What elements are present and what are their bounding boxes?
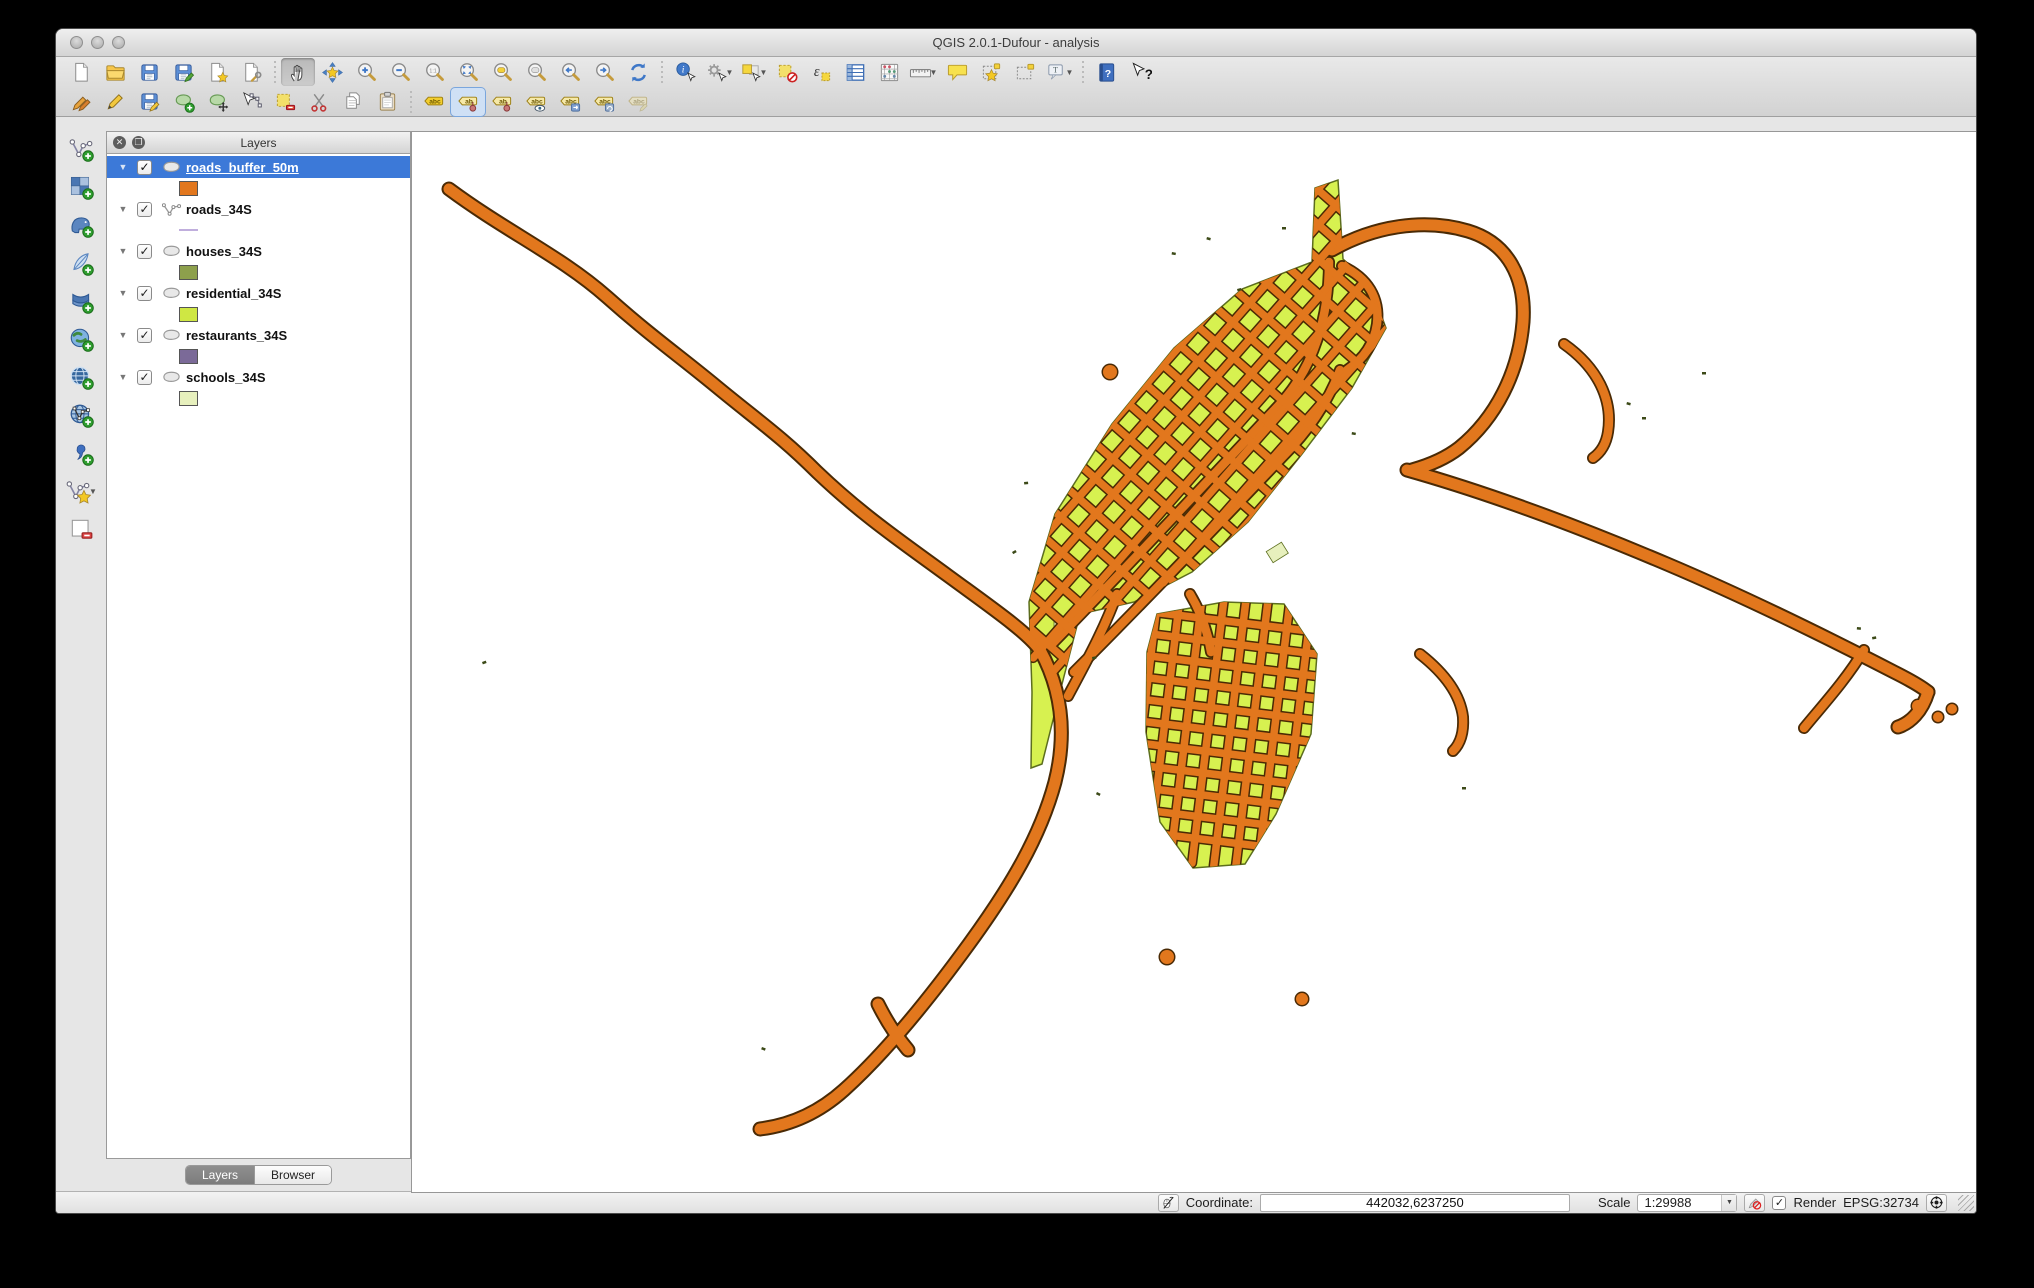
zoom-native-button[interactable]: 1:1 bbox=[417, 58, 451, 86]
chevron-down-icon: ▼ bbox=[89, 487, 97, 496]
expander-icon[interactable]: ▼ bbox=[117, 288, 129, 298]
crs-text: EPSG:32734 bbox=[1843, 1195, 1919, 1210]
toolbar-file-nav-attributes: 1:1i▼▼ε▼T▼?? bbox=[56, 57, 1976, 87]
add-postgis-layer-button[interactable] bbox=[63, 209, 99, 241]
new-project-icon bbox=[70, 61, 93, 84]
feature-action-button[interactable]: ▼ bbox=[702, 58, 736, 86]
field-calculator-button[interactable] bbox=[872, 58, 906, 86]
whats-this-button[interactable]: ? bbox=[1123, 58, 1157, 86]
show-bookmarks-button[interactable] bbox=[1008, 58, 1042, 86]
add-mssql-layer-icon bbox=[68, 288, 94, 314]
measure-icon bbox=[909, 61, 932, 84]
layer-symbol-swatch bbox=[179, 181, 198, 196]
add-wms-layer-icon bbox=[68, 326, 94, 352]
new-composer-icon bbox=[206, 61, 229, 84]
panel-tabs: LayersBrowser bbox=[185, 1165, 332, 1185]
select-expression-icon: ε bbox=[810, 61, 833, 84]
show-hide-labels-button[interactable]: abc bbox=[519, 88, 553, 116]
label-options-icon: abc bbox=[423, 90, 446, 113]
polygon-layer-icon bbox=[160, 160, 182, 174]
zoom-selection-button[interactable] bbox=[485, 58, 519, 86]
add-delimited-text-layer-icon bbox=[68, 440, 94, 466]
layer-symbol-swatch bbox=[179, 391, 198, 406]
layer-name: houses_34S bbox=[186, 244, 262, 259]
add-vector-layer-icon bbox=[68, 136, 94, 162]
polygon-layer-icon bbox=[160, 244, 182, 258]
cut-features-icon bbox=[308, 90, 331, 113]
layer-checkbox[interactable]: ✓ bbox=[137, 160, 152, 175]
tab-layers[interactable]: Layers bbox=[186, 1166, 255, 1184]
deselect-features-button[interactable] bbox=[770, 58, 804, 86]
open-project-button[interactable] bbox=[98, 58, 132, 86]
open-project-icon bbox=[104, 61, 127, 84]
layer-checkbox[interactable]: ✓ bbox=[137, 328, 152, 343]
node-tool-button[interactable] bbox=[234, 88, 268, 116]
attribute-table-button[interactable] bbox=[838, 58, 872, 86]
zoom-selection-icon bbox=[491, 61, 514, 84]
layers-panel-header: ✕ ❐ Layers bbox=[107, 132, 410, 154]
highlight-pinned-icon: ab bbox=[491, 90, 514, 113]
add-raster-layer-icon bbox=[68, 174, 94, 200]
text-annotation-icon: T bbox=[1045, 61, 1068, 84]
composer-manager-icon bbox=[240, 61, 263, 84]
save-edits-icon bbox=[138, 90, 161, 113]
map-drawing bbox=[412, 132, 1977, 1192]
layer-name: roads_buffer_50m bbox=[186, 160, 299, 175]
chevron-down-icon: ▼ bbox=[1066, 68, 1074, 77]
pan-to-selection-button[interactable] bbox=[315, 58, 349, 86]
svg-text:?: ? bbox=[1104, 67, 1110, 79]
deselect-features-icon bbox=[776, 61, 799, 84]
add-vector-layer-button[interactable] bbox=[63, 133, 99, 165]
layer-symbol-swatch bbox=[179, 229, 198, 231]
svg-text:abc: abc bbox=[633, 98, 645, 105]
select-features-button[interactable]: ▼ bbox=[736, 58, 770, 86]
zoom-last-icon bbox=[559, 61, 582, 84]
add-spatialite-layer-button[interactable] bbox=[63, 247, 99, 279]
svg-text:?: ? bbox=[1144, 67, 1151, 82]
select-features-icon bbox=[739, 61, 762, 84]
polygon-layer-icon bbox=[160, 286, 182, 300]
text-annotation-button[interactable]: T▼ bbox=[1042, 58, 1076, 86]
layer-name: schools_34S bbox=[186, 370, 266, 385]
pan-to-selection-icon bbox=[321, 61, 344, 84]
add-feature-icon bbox=[172, 90, 195, 113]
new-composer-button[interactable] bbox=[200, 58, 234, 86]
add-mssql-layer-button[interactable] bbox=[63, 285, 99, 317]
zoom-next-icon bbox=[593, 61, 616, 84]
pin-labels-button[interactable]: ab bbox=[451, 88, 485, 116]
new-bookmark-button[interactable] bbox=[974, 58, 1008, 86]
toolbar-digitizing-labels: abcabababcabcabcabc bbox=[56, 87, 1976, 117]
layer-name: residential_34S bbox=[186, 286, 281, 301]
toolbar-separator bbox=[1079, 61, 1086, 83]
zoom-in-button[interactable] bbox=[349, 58, 383, 86]
svg-text:ab: ab bbox=[465, 98, 473, 105]
toggle-editing-button[interactable] bbox=[98, 88, 132, 116]
delete-selected-icon bbox=[274, 90, 297, 113]
whats-this-icon: ? bbox=[1129, 61, 1152, 84]
toolbar-separator bbox=[407, 91, 414, 113]
attribute-table-icon bbox=[844, 61, 867, 84]
field-calculator-icon bbox=[878, 61, 901, 84]
statusbar: Coordinate: Scale 1:29988 ▼ ✓ Render EPS… bbox=[56, 1191, 1976, 1213]
pin-labels-icon: ab bbox=[457, 90, 480, 113]
zoom-out-icon bbox=[389, 61, 412, 84]
layer-item-schools_34S[interactable]: ▼✓schools_34S bbox=[107, 366, 410, 388]
polygon-layer-icon bbox=[160, 370, 182, 384]
toolbar-separator bbox=[271, 61, 278, 83]
svg-text:i: i bbox=[681, 64, 684, 75]
titlebar[interactable]: QGIS 2.0.1-Dufour - analysis bbox=[56, 29, 1976, 57]
save-project-button[interactable] bbox=[132, 58, 166, 86]
zoom-native-icon: 1:1 bbox=[423, 61, 446, 84]
current-edits-button[interactable] bbox=[64, 88, 98, 116]
scale-value: 1:29988 bbox=[1638, 1195, 1721, 1210]
identify-icon: i bbox=[674, 61, 697, 84]
move-feature-button[interactable] bbox=[200, 88, 234, 116]
chevron-down-icon: ▼ bbox=[1721, 1195, 1736, 1211]
layer-checkbox[interactable]: ✓ bbox=[137, 370, 152, 385]
add-feature-button[interactable] bbox=[166, 88, 200, 116]
measure-button[interactable]: ▼ bbox=[906, 58, 940, 86]
save-project-as-icon bbox=[172, 61, 195, 84]
layer-item-roads_34S[interactable]: ▼✓roads_34S bbox=[107, 198, 410, 220]
toggle-editing-icon bbox=[104, 90, 127, 113]
layer-symbol-swatch bbox=[179, 307, 198, 322]
add-wms-layer-button[interactable] bbox=[63, 323, 99, 355]
zoom-layer-button[interactable] bbox=[519, 58, 553, 86]
layer-symbol-swatch bbox=[179, 265, 198, 280]
copy-features-icon bbox=[342, 90, 365, 113]
current-edits-icon bbox=[70, 90, 93, 113]
qgis-window: QGIS 2.0.1-Dufour - analysis 1:1i▼▼ε▼T▼?… bbox=[55, 28, 1977, 1214]
layer-list: ▼✓roads_buffer_50m▼✓roads_34S▼✓houses_34… bbox=[107, 154, 410, 1158]
svg-text:abc: abc bbox=[429, 98, 441, 105]
refresh-icon bbox=[627, 61, 650, 84]
layer-checkbox[interactable]: ✓ bbox=[137, 202, 152, 217]
layer-item-roads_buffer_50m[interactable]: ▼✓roads_buffer_50m bbox=[107, 156, 410, 178]
select-expression-button[interactable]: ε bbox=[804, 58, 838, 86]
polygon-layer-icon bbox=[160, 328, 182, 342]
change-label-icon: abc bbox=[627, 90, 650, 113]
add-wcs-layer-button[interactable] bbox=[63, 361, 99, 393]
add-wcs-layer-icon bbox=[68, 364, 94, 390]
coordinate-label: Coordinate: bbox=[1186, 1195, 1253, 1210]
svg-text:ab: ab bbox=[499, 98, 507, 105]
move-label-icon: abc bbox=[559, 90, 582, 113]
add-delimited-text-layer-button[interactable] bbox=[63, 437, 99, 469]
chevron-down-icon: ▼ bbox=[726, 68, 734, 77]
add-postgis-layer-icon bbox=[68, 212, 94, 238]
resize-grip[interactable] bbox=[1958, 1195, 1974, 1211]
new-project-button[interactable] bbox=[64, 58, 98, 86]
layer-symbol-swatch bbox=[179, 349, 198, 364]
scale-combo[interactable]: 1:29988 ▼ bbox=[1637, 1194, 1737, 1212]
label-options-button[interactable]: abc bbox=[417, 88, 451, 116]
save-project-as-button[interactable] bbox=[166, 58, 200, 86]
svg-text:abc: abc bbox=[531, 98, 543, 105]
refresh-button[interactable] bbox=[621, 58, 655, 86]
save-project-icon bbox=[138, 61, 161, 84]
line-layer-icon bbox=[160, 202, 182, 216]
expander-icon[interactable]: ▼ bbox=[117, 204, 129, 214]
rotate-label-button[interactable]: abc bbox=[587, 88, 621, 116]
map-tips-icon bbox=[946, 61, 969, 84]
chevron-down-icon: ▼ bbox=[930, 68, 938, 77]
layer-checkbox[interactable]: ✓ bbox=[137, 244, 152, 259]
map-tips-button[interactable] bbox=[940, 58, 974, 86]
layer-name: roads_34S bbox=[186, 202, 252, 217]
move-feature-icon bbox=[206, 90, 229, 113]
add-wfs-layer-icon bbox=[68, 402, 94, 428]
zoom-full-button[interactable] bbox=[451, 58, 485, 86]
render-label: Render bbox=[1793, 1195, 1836, 1210]
toolbar-separator bbox=[658, 61, 665, 83]
zoom-out-button[interactable] bbox=[383, 58, 417, 86]
zoom-full-icon bbox=[457, 61, 480, 84]
scale-label: Scale bbox=[1598, 1195, 1631, 1210]
feature-action-icon bbox=[705, 61, 728, 84]
layer-checkbox[interactable]: ✓ bbox=[137, 286, 152, 301]
layer-item-houses_34S[interactable]: ▼✓houses_34S bbox=[107, 240, 410, 262]
layer-item-residential_34S[interactable]: ▼✓residential_34S bbox=[107, 282, 410, 304]
stop-render-icon[interactable] bbox=[1744, 1194, 1765, 1212]
new-shapefile-layer-button[interactable]: ▼ bbox=[63, 475, 99, 507]
new-shapefile-layer-icon bbox=[65, 478, 91, 504]
new-bookmark-icon bbox=[980, 61, 1003, 84]
manage-layers-toolbar: ▼ bbox=[56, 131, 106, 1191]
zoom-last-button[interactable] bbox=[553, 58, 587, 86]
delete-selected-button[interactable] bbox=[268, 88, 302, 116]
chevron-down-icon: ▼ bbox=[760, 68, 768, 77]
identify-button[interactable]: i bbox=[668, 58, 702, 86]
rotate-label-icon: abc bbox=[593, 90, 616, 113]
zoom-next-button[interactable] bbox=[587, 58, 621, 86]
tab-browser[interactable]: Browser bbox=[255, 1166, 331, 1184]
layer-name: restaurants_34S bbox=[186, 328, 287, 343]
map-canvas[interactable] bbox=[411, 131, 1977, 1193]
pan-map-button[interactable] bbox=[281, 58, 315, 86]
layer-item-restaurants_34S[interactable]: ▼✓restaurants_34S bbox=[107, 324, 410, 346]
expander-icon[interactable]: ▼ bbox=[117, 372, 129, 382]
zoom-in-icon bbox=[355, 61, 378, 84]
paste-features-icon bbox=[376, 90, 399, 113]
crs-status-icon[interactable] bbox=[1926, 1194, 1947, 1212]
expander-icon[interactable]: ▼ bbox=[117, 246, 129, 256]
add-wfs-layer-button[interactable] bbox=[63, 399, 99, 431]
window-title: QGIS 2.0.1-Dufour - analysis bbox=[56, 35, 1976, 50]
layers-panel: ✕ ❐ Layers ▼✓roads_buffer_50m▼✓roads_34S… bbox=[106, 131, 411, 1159]
coordinate-input[interactable] bbox=[1260, 1194, 1570, 1212]
copy-features-button[interactable] bbox=[336, 88, 370, 116]
remove-layer-icon bbox=[68, 516, 94, 542]
add-raster-layer-button[interactable] bbox=[63, 171, 99, 203]
expander-icon[interactable]: ▼ bbox=[117, 330, 129, 340]
node-tool-icon bbox=[240, 90, 263, 113]
composer-manager-button[interactable] bbox=[234, 58, 268, 86]
show-bookmarks-icon bbox=[1014, 61, 1037, 84]
layers-panel-title: Layers bbox=[107, 136, 410, 150]
highlight-pinned-button[interactable]: ab bbox=[485, 88, 519, 116]
help-button[interactable]: ? bbox=[1089, 58, 1123, 86]
pan-map-icon bbox=[287, 61, 310, 84]
paste-features-button[interactable] bbox=[370, 88, 404, 116]
cut-features-button[interactable] bbox=[302, 88, 336, 116]
add-spatialite-layer-icon bbox=[68, 250, 94, 276]
help-icon: ? bbox=[1095, 61, 1118, 84]
mouse-tracking-icon[interactable] bbox=[1158, 1194, 1179, 1212]
remove-layer-button[interactable] bbox=[63, 513, 99, 545]
zoom-layer-icon bbox=[525, 61, 548, 84]
change-label-button[interactable]: abc bbox=[621, 88, 655, 116]
save-edits-button[interactable] bbox=[132, 88, 166, 116]
render-checkbox[interactable]: ✓ bbox=[1772, 1196, 1786, 1210]
expander-icon[interactable]: ▼ bbox=[117, 162, 129, 172]
svg-text:T: T bbox=[1053, 65, 1058, 74]
svg-text:1:1: 1:1 bbox=[429, 68, 436, 74]
show-hide-labels-icon: abc bbox=[525, 90, 548, 113]
svg-text:ε: ε bbox=[813, 63, 819, 79]
move-label-button[interactable]: abc bbox=[553, 88, 587, 116]
